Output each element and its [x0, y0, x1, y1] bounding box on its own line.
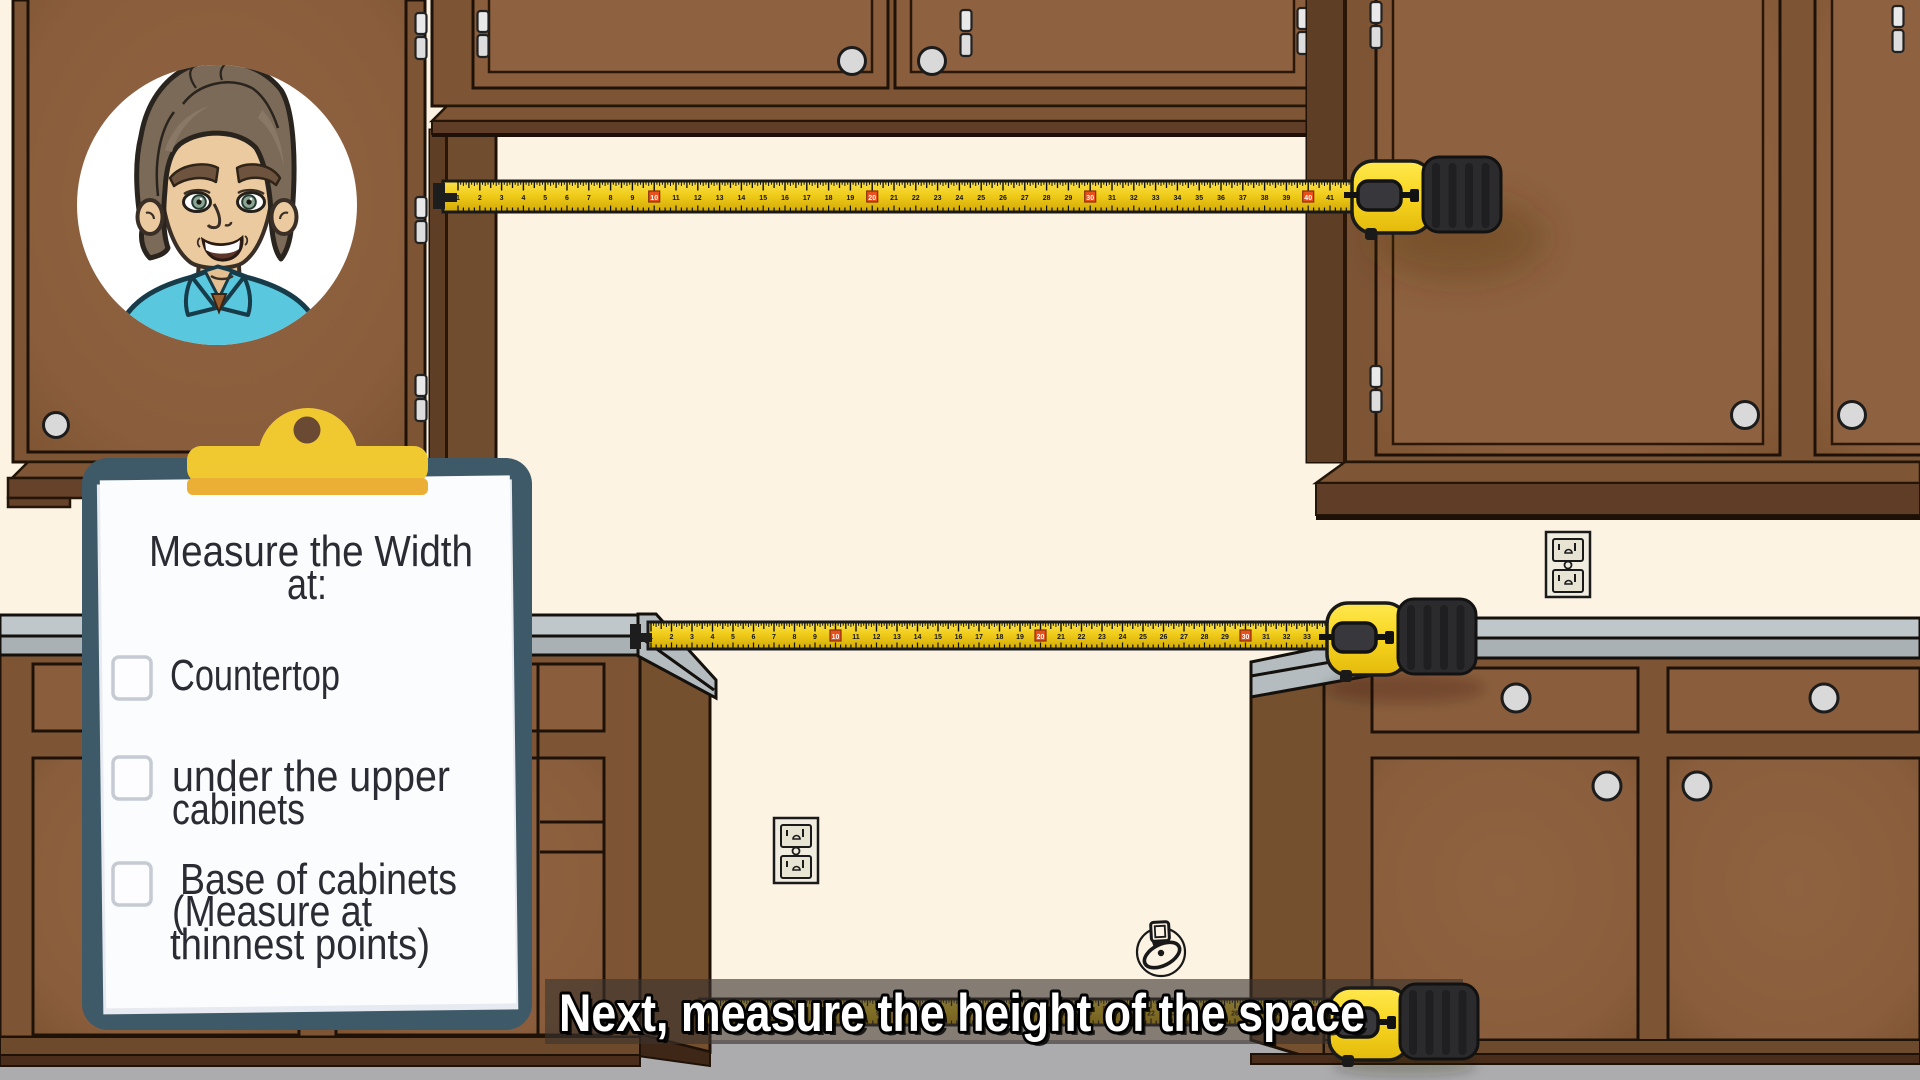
svg-text:10: 10	[650, 195, 658, 202]
svg-text:15: 15	[934, 634, 942, 641]
svg-text:19: 19	[1016, 634, 1024, 641]
svg-text:25: 25	[977, 195, 985, 202]
svg-text:37: 37	[1239, 195, 1247, 202]
svg-text:15: 15	[759, 195, 767, 202]
svg-text:2: 2	[670, 634, 674, 641]
svg-text:28: 28	[1201, 634, 1209, 641]
svg-text:10: 10	[832, 634, 840, 641]
svg-text:at:: at:	[287, 560, 327, 609]
svg-text:17: 17	[803, 195, 811, 202]
svg-text:24: 24	[1119, 634, 1127, 641]
svg-text:24: 24	[956, 195, 964, 202]
svg-text:27: 27	[1021, 195, 1029, 202]
svg-text:8: 8	[609, 195, 613, 202]
svg-text:18: 18	[825, 195, 833, 202]
svg-text:31: 31	[1108, 195, 1116, 202]
svg-text:22: 22	[1078, 634, 1086, 641]
svg-text:11: 11	[672, 195, 680, 202]
svg-text:6: 6	[752, 634, 756, 641]
svg-text:thinnest points): thinnest points)	[170, 920, 430, 969]
svg-text:33: 33	[1303, 634, 1311, 641]
svg-text:19: 19	[847, 195, 855, 202]
svg-text:25: 25	[1139, 634, 1147, 641]
svg-text:3: 3	[690, 634, 694, 641]
svg-text:20: 20	[1037, 634, 1045, 641]
svg-text:4: 4	[521, 195, 525, 202]
svg-text:13: 13	[716, 195, 724, 202]
svg-text:23: 23	[1098, 634, 1106, 641]
svg-text:13: 13	[893, 634, 901, 641]
svg-text:16: 16	[781, 195, 789, 202]
svg-text:7: 7	[587, 195, 591, 202]
svg-text:21: 21	[1057, 634, 1065, 641]
svg-text:39: 39	[1283, 195, 1291, 202]
svg-text:4: 4	[711, 634, 715, 641]
svg-text:29: 29	[1221, 634, 1229, 641]
svg-text:41: 41	[1326, 195, 1334, 202]
svg-text:23: 23	[934, 195, 942, 202]
svg-text:7: 7	[772, 634, 776, 641]
svg-text:36: 36	[1217, 195, 1225, 202]
svg-text:8: 8	[793, 634, 797, 641]
svg-text:cabinets: cabinets	[172, 785, 305, 834]
svg-text:32: 32	[1283, 634, 1291, 641]
svg-text:9: 9	[813, 634, 817, 641]
svg-text:27: 27	[1180, 634, 1188, 641]
svg-text:32: 32	[1130, 195, 1138, 202]
svg-text:26: 26	[1160, 634, 1168, 641]
svg-text:30: 30	[1242, 634, 1250, 641]
svg-text:30: 30	[1086, 195, 1094, 202]
svg-text:Next, measure the height of th: Next, measure the height of the space	[559, 984, 1365, 1043]
svg-text:28: 28	[1043, 195, 1051, 202]
svg-text:20: 20	[868, 195, 876, 202]
svg-text:21: 21	[890, 195, 898, 202]
svg-text:38: 38	[1261, 195, 1269, 202]
svg-text:6: 6	[565, 195, 569, 202]
svg-text:14: 14	[914, 634, 922, 641]
svg-text:Countertop: Countertop	[170, 651, 340, 700]
svg-text:22: 22	[912, 195, 920, 202]
svg-text:5: 5	[543, 195, 547, 202]
svg-text:11: 11	[852, 634, 860, 641]
svg-text:16: 16	[955, 634, 963, 641]
svg-text:33: 33	[1152, 195, 1160, 202]
svg-text:12: 12	[873, 634, 881, 641]
svg-text:5: 5	[731, 634, 735, 641]
svg-text:29: 29	[1065, 195, 1073, 202]
svg-text:17: 17	[975, 634, 983, 641]
svg-text:26: 26	[999, 195, 1007, 202]
svg-text:14: 14	[738, 195, 746, 202]
svg-text:35: 35	[1195, 195, 1203, 202]
svg-text:12: 12	[694, 195, 702, 202]
svg-text:34: 34	[1174, 195, 1182, 202]
svg-text:18: 18	[996, 634, 1004, 641]
svg-text:40: 40	[1304, 195, 1312, 202]
svg-text:9: 9	[630, 195, 634, 202]
svg-text:31: 31	[1262, 634, 1270, 641]
svg-text:2: 2	[478, 195, 482, 202]
svg-text:3: 3	[500, 195, 504, 202]
